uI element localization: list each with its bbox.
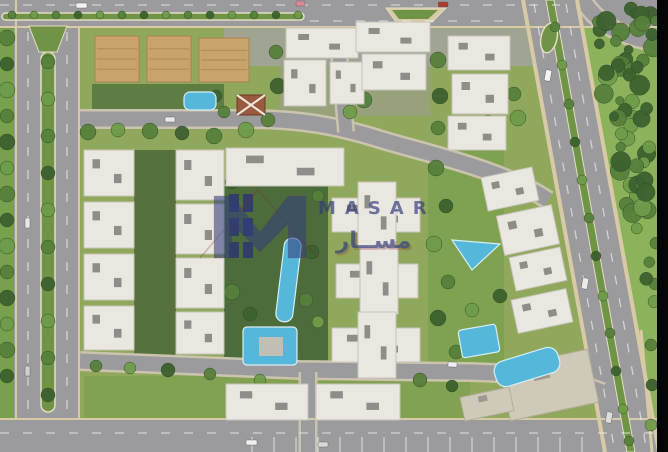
roof-unit xyxy=(486,95,494,103)
tree xyxy=(250,11,258,19)
car-body xyxy=(318,442,328,447)
roof-unit xyxy=(462,82,470,90)
apartment-building xyxy=(362,54,426,90)
road-median xyxy=(2,13,304,20)
forest-tree xyxy=(610,36,621,47)
pool-deck xyxy=(259,337,283,356)
building xyxy=(176,312,224,354)
tree xyxy=(624,436,634,446)
tree xyxy=(0,134,15,150)
road xyxy=(0,420,668,452)
tree xyxy=(0,161,14,175)
tree xyxy=(218,106,230,118)
forest-tree xyxy=(624,45,633,54)
apartment-building xyxy=(84,150,134,196)
tree xyxy=(430,310,446,326)
apartment-building xyxy=(84,306,134,350)
tree xyxy=(507,87,521,101)
apartment-building xyxy=(452,74,508,114)
car xyxy=(76,3,87,8)
roof-unit xyxy=(330,391,343,398)
building xyxy=(226,148,344,186)
tree xyxy=(0,186,15,202)
tree xyxy=(30,11,38,19)
building xyxy=(362,54,426,90)
forest-tree xyxy=(643,141,656,154)
car-body xyxy=(296,1,305,6)
tree xyxy=(646,379,658,391)
tree xyxy=(41,203,55,217)
roof-unit xyxy=(507,220,517,230)
tree xyxy=(228,11,236,19)
roof-unit xyxy=(336,70,341,78)
tree xyxy=(41,166,55,180)
apartment-building xyxy=(316,384,400,420)
tree xyxy=(52,11,60,19)
forest-tree xyxy=(623,68,636,81)
car xyxy=(165,117,175,122)
forest-tree xyxy=(634,15,650,31)
tree xyxy=(0,317,14,331)
forest-tree xyxy=(644,257,655,268)
tree xyxy=(0,238,15,254)
tree xyxy=(161,363,175,377)
apartment-building xyxy=(226,148,344,186)
tree xyxy=(140,11,148,19)
tree xyxy=(8,11,16,19)
tree xyxy=(510,110,526,126)
building xyxy=(448,36,510,70)
roof-unit xyxy=(366,403,379,410)
roof-unit xyxy=(205,176,212,186)
tree xyxy=(343,105,357,119)
tree xyxy=(41,240,55,254)
apartment-building xyxy=(176,312,224,354)
pool-water xyxy=(458,324,500,358)
swimming-pool xyxy=(243,327,297,365)
tree xyxy=(618,404,628,414)
roof-unit xyxy=(459,43,468,50)
car xyxy=(318,442,328,447)
building xyxy=(452,74,508,114)
building xyxy=(448,116,506,150)
building xyxy=(316,384,400,420)
apartment-building xyxy=(226,384,308,420)
roof-unit xyxy=(184,320,191,328)
car xyxy=(438,2,448,7)
building xyxy=(226,384,308,420)
pool-water xyxy=(184,92,216,110)
roof-unit xyxy=(381,346,387,359)
roof-unit xyxy=(458,123,467,130)
tree xyxy=(299,293,313,307)
roof-unit xyxy=(400,73,410,80)
roof-unit xyxy=(240,391,252,398)
forest-tree xyxy=(609,112,618,121)
tree xyxy=(0,342,15,358)
apartment-building xyxy=(356,22,430,52)
tree xyxy=(432,88,448,104)
building xyxy=(356,22,430,52)
tree xyxy=(611,366,621,376)
tree xyxy=(0,369,14,383)
tree xyxy=(184,11,192,19)
building xyxy=(84,306,134,350)
car xyxy=(296,1,305,6)
car-body xyxy=(448,362,457,367)
forest-tree xyxy=(615,128,627,140)
building xyxy=(360,248,398,314)
tree xyxy=(557,60,567,70)
apartment-building xyxy=(284,60,326,106)
forest-tree xyxy=(594,84,613,103)
tree xyxy=(272,11,280,19)
tree xyxy=(426,236,442,252)
roof-unit xyxy=(114,278,122,287)
tree xyxy=(465,303,479,317)
forest-tree xyxy=(616,97,624,105)
tree xyxy=(41,314,55,328)
building xyxy=(284,60,326,106)
roof-unit xyxy=(534,228,544,238)
building xyxy=(199,38,249,82)
tree xyxy=(41,129,55,143)
roof-unit xyxy=(485,54,494,61)
roof-unit xyxy=(400,38,411,44)
tree xyxy=(41,277,55,291)
forest-tree xyxy=(594,39,604,49)
masterplan-svg: مســار MASAR مســار xyxy=(0,0,668,452)
tree xyxy=(206,11,214,19)
tree xyxy=(0,265,14,279)
roof-unit xyxy=(184,160,191,170)
tree xyxy=(577,175,587,185)
roof-unit xyxy=(114,329,122,338)
tree xyxy=(124,362,136,374)
tree xyxy=(118,11,126,19)
building xyxy=(147,36,191,82)
watermark-text-ar: مســار xyxy=(335,228,411,254)
tree xyxy=(41,388,55,402)
roof-unit xyxy=(93,159,101,168)
forest-tree xyxy=(646,28,658,40)
tree xyxy=(294,11,302,19)
tree xyxy=(428,160,444,176)
tree xyxy=(175,126,189,140)
apartment-building xyxy=(176,150,224,200)
roof-unit xyxy=(205,230,212,240)
tree xyxy=(142,123,158,139)
roof-unit xyxy=(350,84,355,92)
apartment-building xyxy=(358,312,396,378)
roof-unit xyxy=(93,315,101,324)
car-body xyxy=(165,117,175,122)
tree xyxy=(206,128,222,144)
roof-unit xyxy=(246,156,264,164)
swimming-pool xyxy=(184,92,216,110)
tree xyxy=(446,380,458,392)
tree xyxy=(570,137,580,147)
tree xyxy=(493,289,507,303)
tree xyxy=(584,213,594,223)
forest-tree xyxy=(634,199,652,217)
image-edge-bar xyxy=(657,0,668,452)
tree xyxy=(111,123,125,137)
roof-unit xyxy=(483,134,492,141)
apartment-building xyxy=(330,62,364,104)
tree xyxy=(605,328,615,338)
building xyxy=(176,258,224,308)
apartment-building xyxy=(448,36,510,70)
tree xyxy=(0,82,15,98)
tree xyxy=(41,351,55,365)
tree xyxy=(41,55,55,69)
apartment-building xyxy=(84,202,134,248)
pool-cabana xyxy=(243,242,253,258)
tree xyxy=(0,109,14,123)
apartment-building xyxy=(176,258,224,308)
forest-tree xyxy=(641,102,653,114)
masterplan-render: مســار MASAR مســار xyxy=(0,0,668,452)
tree xyxy=(0,30,15,46)
building xyxy=(84,254,134,300)
tree xyxy=(441,275,455,289)
tree xyxy=(204,368,216,380)
tree xyxy=(645,419,657,431)
building xyxy=(286,28,358,58)
roof-unit xyxy=(309,84,315,93)
tree xyxy=(238,122,254,138)
forest-tree xyxy=(631,223,642,234)
tree xyxy=(74,11,82,19)
watermark-text-en: MASAR xyxy=(318,198,436,219)
tree xyxy=(430,52,446,68)
car-body xyxy=(25,218,30,228)
roof-unit xyxy=(93,211,101,220)
car xyxy=(25,366,30,376)
car-body xyxy=(25,366,30,376)
tree xyxy=(598,291,608,301)
tree xyxy=(243,307,257,321)
building xyxy=(176,150,224,200)
forest-tree xyxy=(629,159,643,173)
tree xyxy=(550,22,560,32)
building xyxy=(84,150,134,196)
roof-unit xyxy=(297,168,315,176)
roof-unit xyxy=(291,69,297,78)
apartment-building xyxy=(84,254,134,300)
car-body xyxy=(246,440,257,445)
roof-unit xyxy=(114,174,122,183)
tree xyxy=(41,92,55,106)
tree xyxy=(431,121,445,135)
car-body xyxy=(438,2,448,7)
swimming-pool xyxy=(458,324,500,358)
roof-unit xyxy=(114,226,122,235)
roof-unit xyxy=(93,263,101,272)
tree xyxy=(439,199,453,213)
roof-unit xyxy=(205,334,212,342)
forest-tree xyxy=(616,142,626,152)
roof-unit xyxy=(298,34,309,40)
forest-tree xyxy=(611,152,631,172)
tree xyxy=(564,99,574,109)
roof-unit xyxy=(184,268,191,278)
roof-unit xyxy=(184,214,191,224)
tree xyxy=(413,373,427,387)
tree xyxy=(269,45,283,59)
frame-layer xyxy=(657,0,668,452)
apartment-building xyxy=(360,248,398,314)
apartment-building xyxy=(286,28,358,58)
tree xyxy=(0,57,14,71)
tree xyxy=(80,124,96,140)
forest-tree xyxy=(640,272,653,285)
car xyxy=(25,218,30,228)
forest-tree xyxy=(637,183,655,201)
apartment-building xyxy=(448,116,506,150)
roof-unit xyxy=(383,282,389,295)
tree xyxy=(0,213,14,227)
tree xyxy=(0,290,15,306)
forest-tree xyxy=(597,11,617,31)
roof-unit xyxy=(329,44,340,50)
car xyxy=(246,440,257,445)
tree xyxy=(224,284,240,300)
roof-unit xyxy=(205,284,212,294)
tree xyxy=(312,316,324,328)
tree xyxy=(162,11,170,19)
car-body xyxy=(76,3,87,8)
building xyxy=(84,202,134,248)
roof-unit xyxy=(275,403,287,410)
building xyxy=(358,312,396,378)
tree xyxy=(645,339,657,351)
ground-patch xyxy=(134,150,176,356)
roof-unit xyxy=(373,61,383,68)
forest-tree xyxy=(599,65,615,81)
tree xyxy=(96,11,104,19)
tree xyxy=(90,360,102,372)
tree xyxy=(591,251,601,261)
roof-unit xyxy=(366,261,372,274)
roof-unit xyxy=(369,28,380,34)
building xyxy=(95,36,139,82)
building xyxy=(330,62,364,104)
roof-unit xyxy=(364,325,370,338)
car xyxy=(448,362,457,367)
